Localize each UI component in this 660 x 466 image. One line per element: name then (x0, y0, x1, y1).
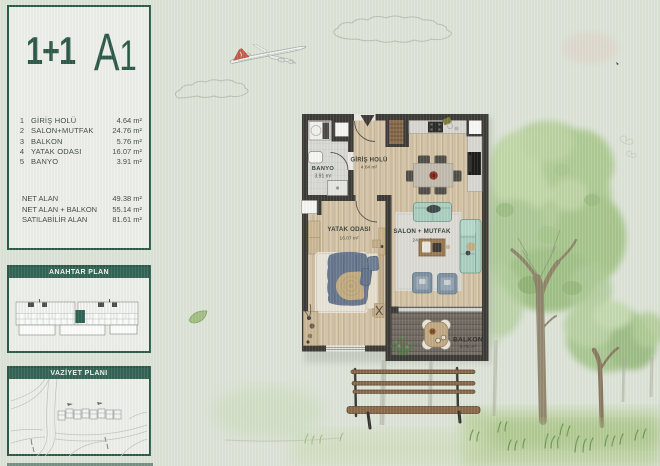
svg-text:16.07 m²: 16.07 m² (340, 236, 359, 242)
svg-text:BALKON: BALKON (453, 337, 483, 344)
svg-text:SALON + MUTFAK: SALON + MUTFAK (393, 228, 451, 235)
svg-text:YATAK ODASI: YATAK ODASI (327, 226, 370, 233)
svg-text:GİRİŞ HOLÜ: GİRİŞ HOLÜ (350, 157, 387, 164)
svg-text:4.64 m²: 4.64 m² (361, 165, 378, 171)
svg-text:3.91 m²: 3.91 m² (315, 174, 332, 180)
svg-text:BANYO: BANYO (312, 166, 335, 172)
svg-text:5.76 m²: 5.76 m² (460, 344, 477, 350)
